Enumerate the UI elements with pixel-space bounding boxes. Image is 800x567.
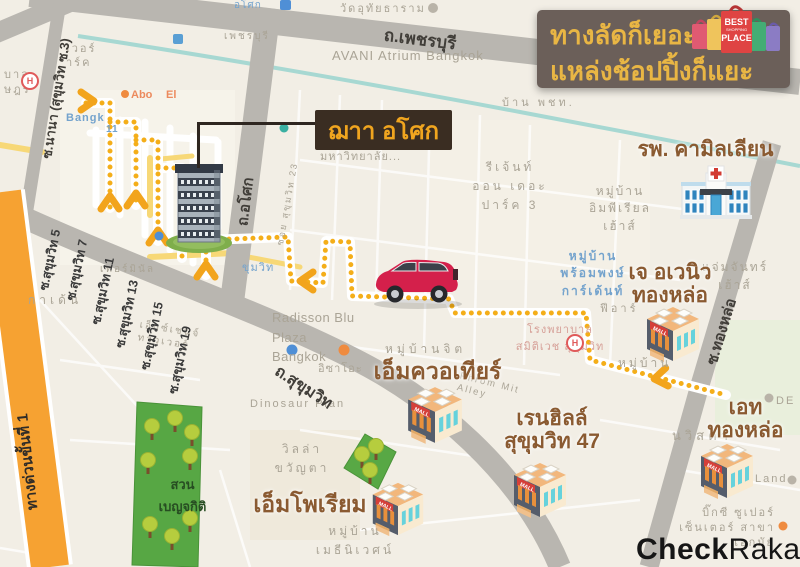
map-canvas: MALL — [0, 0, 800, 567]
condo-tower-icon — [163, 158, 235, 254]
bigc-pin — [779, 522, 788, 531]
mall-icon-emquartier — [400, 384, 470, 446]
road-nana — [24, 0, 62, 228]
benjakiti-park — [132, 402, 202, 567]
condo-callout-label: ฌาา อโศก — [315, 110, 452, 150]
badge-best-text: BEST — [724, 17, 749, 27]
checkraka-logo: CheckRaka — [636, 533, 800, 567]
land-pin — [788, 476, 797, 485]
badge-place-text: PLACE — [721, 33, 752, 43]
hospital-icon — [680, 165, 752, 221]
mall-icon-eight — [694, 441, 760, 501]
de-pin — [765, 394, 774, 403]
logo-light-part: Raka — [729, 533, 800, 566]
logo-bold-part: Check — [636, 533, 729, 566]
samitivej-hospital-pin: H — [566, 334, 584, 352]
car-icon — [368, 254, 468, 312]
banner-line1: ทางลัดก็เยอะ — [550, 15, 697, 56]
airport-link-icon — [280, 0, 291, 10]
mall-icon-emporium — [366, 478, 430, 540]
shopping-bags-icon: BEST SHOPPING PLACE — [690, 4, 786, 68]
callout-line-horizontal — [197, 122, 317, 125]
pier-icon — [173, 34, 183, 44]
mall-icon-rainhill — [506, 460, 574, 520]
mall-icon-javenue — [640, 304, 706, 364]
restaurant-pin-above — [121, 90, 129, 98]
badge-shopping-text: SHOPPING — [726, 27, 747, 32]
bumrungrad-hospital-pin: H — [21, 72, 39, 90]
wat-pin — [428, 3, 438, 13]
callout-line-vertical — [197, 122, 200, 168]
headline-banner: ทางลัดก็เยอะ แหล่งช้อปปิ้งก็แยะ BEST SHO… — [537, 10, 790, 88]
restaurant-pin-isao — [339, 345, 350, 356]
hotel-pin-radisson — [287, 345, 298, 356]
